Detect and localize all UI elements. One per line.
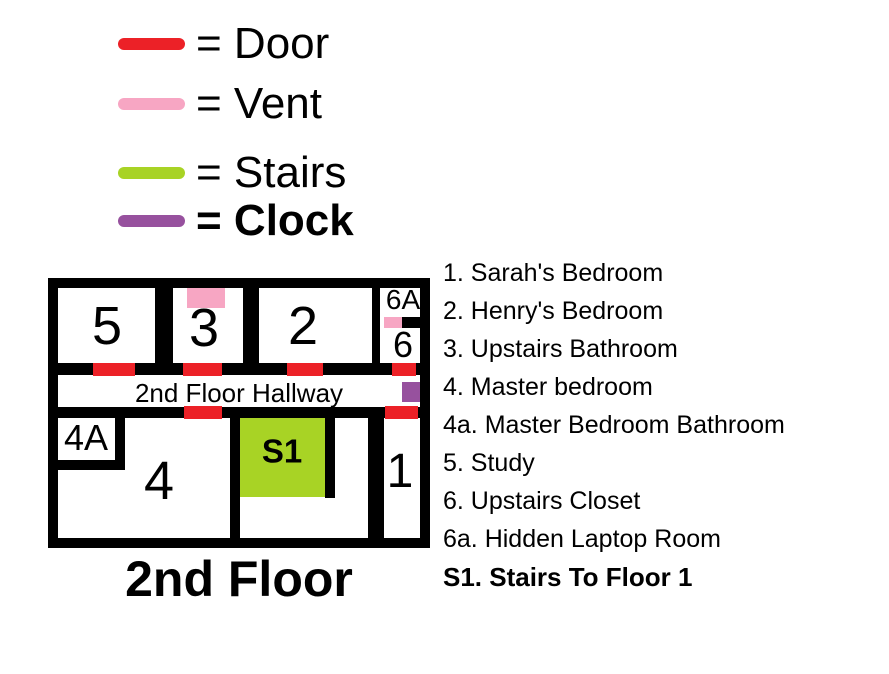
legend-item-door: = Door xyxy=(118,17,329,71)
room-label-6: 6 xyxy=(393,327,413,363)
wall-hallway-bottom xyxy=(58,407,420,418)
room-list-item: 5. Study xyxy=(443,444,785,482)
door-swatch-icon xyxy=(118,38,185,50)
door-marker-room2 xyxy=(287,363,323,376)
room-label-5: 5 xyxy=(92,299,122,353)
stairs-swatch-icon xyxy=(118,167,185,179)
door-marker-room3 xyxy=(183,363,222,376)
legend-vent-label: = Vent xyxy=(196,82,322,126)
wall-room3-room2 xyxy=(243,288,259,363)
room-list-item: 2. Henry's Bedroom xyxy=(443,292,785,330)
room-label-4a: 4A xyxy=(64,420,108,456)
legend-item-vent: = Vent xyxy=(118,77,322,131)
vent-swatch-icon xyxy=(118,98,185,110)
room-list-item: 6. Upstairs Closet xyxy=(443,482,785,520)
legend-item-stairs: = Stairs xyxy=(118,146,346,200)
room-label-2: 2 xyxy=(288,299,318,353)
room-list-item: 4. Master bedroom xyxy=(443,368,785,406)
wall-room4-stairs xyxy=(230,418,240,538)
floor-title: 2nd Floor xyxy=(48,554,430,604)
room-list: 1. Sarah's Bedroom 2. Henry's Bedroom 3.… xyxy=(443,254,785,596)
hallway-label: 2nd Floor Hallway xyxy=(58,380,420,406)
legend-stairs-label: = Stairs xyxy=(196,151,346,195)
wall-room1-left xyxy=(368,407,384,538)
door-marker-room1 xyxy=(385,406,418,419)
room-list-item: 6a. Hidden Laptop Room xyxy=(443,520,785,558)
room-label-1: 1 xyxy=(387,448,414,496)
wall-room5-room3 xyxy=(155,288,173,363)
legend-clock-label: = Clock xyxy=(196,199,354,243)
legend-door-label: = Door xyxy=(196,22,329,66)
room-label-6a: 6A xyxy=(386,286,420,314)
wall-stairs-right xyxy=(325,418,335,498)
wall-room2-closet xyxy=(372,288,380,363)
room-label-4: 4 xyxy=(144,454,174,508)
legend-item-clock: = Clock xyxy=(118,194,354,248)
floorplan-page: = Door = Vent = Stairs = Clock xyxy=(0,0,889,674)
room-label-3: 3 xyxy=(189,301,219,355)
room-list-item: 3. Upstairs Bathroom xyxy=(443,330,785,368)
room-list-item-s1: S1. Stairs To Floor 1 xyxy=(443,558,785,596)
wall-room4a-bottom xyxy=(58,460,125,470)
room-list-item: 1. Sarah's Bedroom xyxy=(443,254,785,292)
room-list-item: 4a. Master Bedroom Bathroom xyxy=(443,406,785,444)
room-label-s1: S1 xyxy=(262,435,302,468)
floor-plan: 5 3 2 6A 6 4A 4 S1 1 2nd Floor Hallway xyxy=(48,278,430,548)
door-marker-room5 xyxy=(93,363,135,376)
clock-swatch-icon xyxy=(118,215,185,227)
